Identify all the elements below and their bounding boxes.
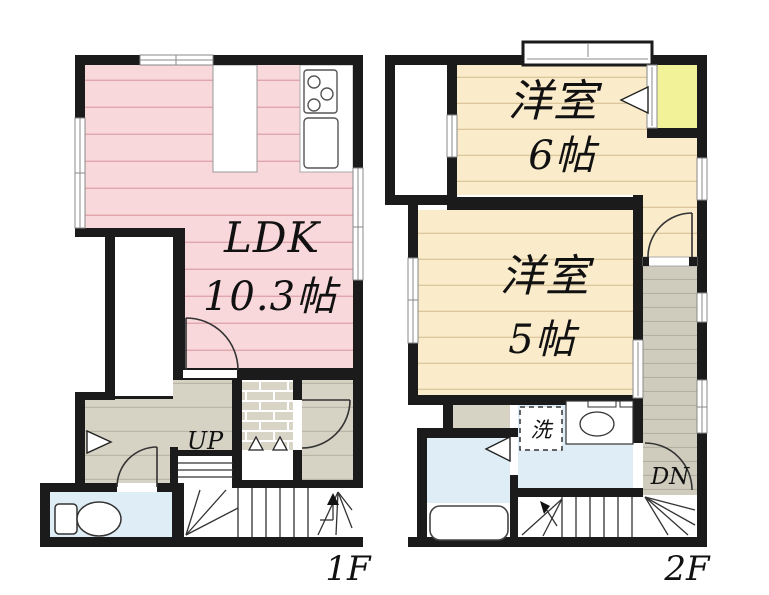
bedroom-5 <box>418 210 633 395</box>
window-top-icon <box>140 55 213 65</box>
washing-machine-label: 洗 <box>531 418 554 442</box>
sliding-door-icon <box>633 340 643 398</box>
entry-hall <box>302 375 353 480</box>
stairs-down-label: DN <box>650 464 690 490</box>
bedroom6-area-label: 6帖 <box>528 133 599 179</box>
closet-strip <box>453 405 510 428</box>
ldk-name-label: LDK <box>223 213 322 262</box>
window-icon <box>447 115 457 157</box>
floor1-label: 1F <box>325 549 372 589</box>
stairs-up-label: UP <box>187 427 224 455</box>
vanity-sink-icon <box>566 401 633 444</box>
ldk-area-label: 10.3帖 <box>203 274 341 320</box>
bathtub-icon <box>430 506 508 540</box>
window-icon <box>697 293 707 322</box>
stove-icon <box>304 70 337 113</box>
floor1-plan: LDK 10.3帖 UP 1F <box>40 55 372 589</box>
floorplan-image: LDK 10.3帖 UP 1F <box>0 0 769 595</box>
bedroom5-area-label: 5帖 <box>508 317 579 363</box>
floor-plan-canvas: LDK 10.3帖 UP 1F <box>0 0 769 595</box>
bay-window-icon <box>523 42 652 65</box>
window-left-icon <box>75 118 85 228</box>
toilet-icon <box>55 502 121 536</box>
window-right-icon <box>353 168 363 280</box>
staircase-1f <box>184 488 353 537</box>
bedroom6-name-label: 洋室 <box>508 76 603 127</box>
landing <box>242 452 293 483</box>
corridor-2f <box>643 266 697 495</box>
window-icon <box>697 158 707 200</box>
window-icon <box>697 380 707 433</box>
void-space <box>115 237 173 398</box>
genkan-tiles <box>242 373 293 452</box>
kitchen-sink-icon <box>304 118 338 168</box>
closet-yellow <box>657 65 697 128</box>
window-icon <box>408 258 418 343</box>
floor2-plan: 洋室 6帖 洋室 5帖 DN 洗 2F <box>385 42 711 589</box>
floor2-label: 2F <box>663 549 711 589</box>
kitchen-counter <box>213 65 257 172</box>
void-space-2f <box>395 65 447 195</box>
bedroom5-name-label: 洋室 <box>500 251 595 302</box>
